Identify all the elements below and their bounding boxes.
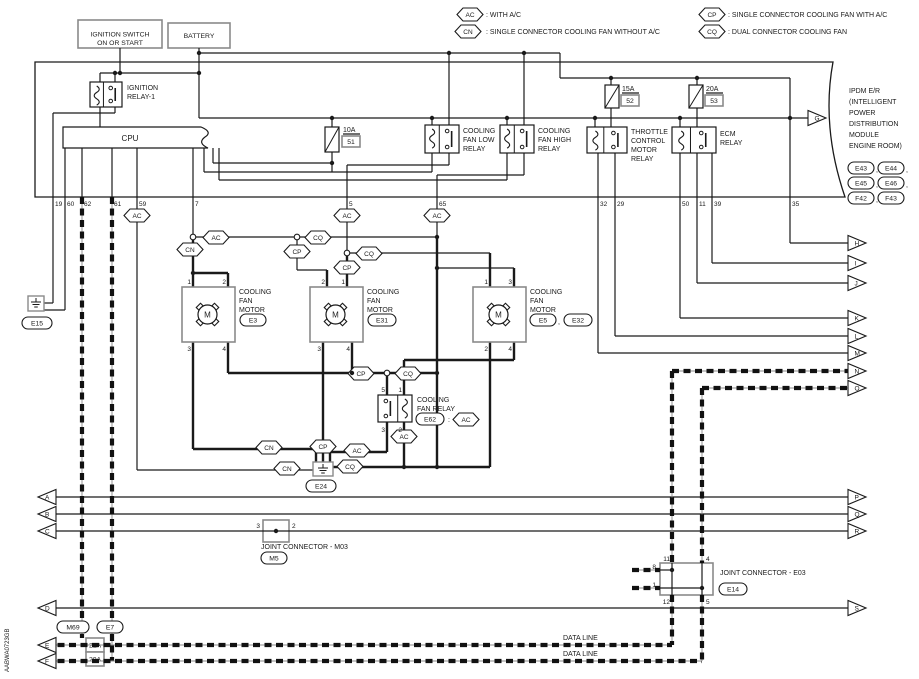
junction-dot [402, 465, 406, 469]
connector-oval-e45-label: E45 [855, 181, 867, 188]
connector-tag-ac-label: AC [465, 12, 474, 19]
junction-dot [670, 568, 674, 572]
text-label: 19 [55, 201, 63, 208]
text-label: 32 [600, 201, 608, 208]
connector-oval-e46-label: E46 [885, 181, 897, 188]
junction-dot [609, 76, 613, 80]
text-label: 1 [398, 387, 402, 394]
text-label: 1 [652, 582, 656, 589]
ignition-relay-symbol-contact [109, 86, 113, 90]
fuse-53-label-box-label: 53 [710, 98, 718, 105]
ecm-relay-symbol-contact [699, 145, 703, 149]
connector-oval-e15-label: E15 [31, 321, 43, 328]
text-label: 3 [381, 427, 385, 434]
throttle-control-motor-relay-symbol-contact [612, 131, 616, 135]
page-link-arrow-G-label: G [815, 115, 820, 122]
text-label: , [876, 182, 878, 189]
text-label: 8 [652, 564, 656, 571]
text-label: 59 [139, 201, 147, 208]
joint-connector-e03-box [660, 563, 713, 595]
text-label: ECMRELAY [720, 131, 743, 147]
junction-dot [118, 71, 122, 75]
page-link-arrow-I [848, 256, 866, 271]
text-label: 5 [349, 201, 353, 208]
text-label: : DUAL CONNECTOR COOLING FAN [728, 29, 847, 36]
page-link-arrow-S-label: S [855, 605, 860, 612]
connector-tag-ac-label: AC [399, 434, 408, 441]
junction-dot [788, 116, 792, 120]
cooling-fan-motor-2-symbol-letter: M [332, 311, 339, 320]
junction-dot [197, 51, 201, 55]
connector-tag-cn-label: CN [264, 445, 274, 452]
junction-dot [330, 116, 334, 120]
connector-tag-ac-label: AC [342, 213, 351, 220]
junction-dot [274, 529, 278, 533]
cooling-fan-high-relay-symbol-contact [520, 145, 524, 149]
text-label: , [558, 319, 560, 326]
text-label: 62 [84, 201, 92, 208]
junction-dot [522, 51, 526, 55]
text-label: : WITH A/C [486, 12, 521, 19]
connector-tag-cn-label: CN [282, 466, 292, 473]
connector-oval-e31-label: E31 [376, 318, 388, 325]
text-label: COOLINGFAN LOWRELAY [463, 128, 495, 153]
text-label: 65 [439, 201, 447, 208]
cooling-fan-low-relay-symbol-contact [445, 129, 449, 133]
connector-oval-e7-label: E7 [106, 625, 115, 632]
text-label: JOINT CONNECTOR - E03 [720, 570, 806, 577]
junction-dot [330, 161, 334, 165]
cooling-fan-low-relay-symbol-contact [445, 145, 449, 149]
text-label: 60 [67, 201, 75, 208]
connector-oval-m5-label: M5 [269, 556, 279, 563]
page-link-arrow-I-label: I [855, 260, 857, 267]
connector-tag-cq-label: CQ [403, 371, 413, 378]
text-label: 3 [317, 346, 321, 353]
text-label: 2 [398, 427, 402, 434]
text-label: : SINGLE CONNECTOR COOLING FAN WITH A/C [728, 12, 887, 19]
junction-dot [678, 116, 682, 120]
connector-oval-e62-label: E62 [424, 417, 436, 424]
throttle-control-motor-relay-symbol-contact [612, 145, 616, 149]
connector-oval-e3-label: E3 [249, 318, 258, 325]
page-link-arrow-B-label: B [45, 511, 49, 518]
connector-oval-f43-label: F43 [885, 196, 897, 203]
cooling-fan-motor-3-symbol-letter: M [495, 311, 502, 320]
connector-tag-cp-label: CP [318, 444, 327, 451]
text-label: 29 [617, 201, 625, 208]
junction-circle [344, 250, 350, 256]
text-label: CPU [122, 134, 139, 143]
connector-tag-cp-label: CP [356, 371, 365, 378]
text-label: 4 [508, 346, 512, 353]
text-label: 15A [622, 86, 635, 93]
page-link-arrow-M-label: M [855, 350, 860, 357]
page-link-arrow-O-label: O [855, 385, 860, 392]
ignition-relay-symbol-contact [109, 99, 113, 103]
page-link-arrow-N-label: N [855, 368, 860, 375]
text-label: 5 [706, 599, 710, 606]
text-label: 11 [699, 201, 706, 208]
connector-oval-f42-label: F42 [855, 196, 867, 203]
text-label: 4 [346, 346, 350, 353]
text-label: 3 [508, 279, 512, 286]
junction-circle [190, 234, 196, 240]
junction-dot [113, 71, 117, 75]
junction-dot [197, 71, 201, 75]
junction-dot [435, 235, 439, 239]
text-label: JOINT CONNECTOR - M03 [261, 544, 348, 551]
connector-oval-e44-label: E44 [885, 166, 897, 173]
text-label: IGNITIONRELAY-1 [127, 85, 158, 101]
junction-dot [191, 271, 195, 275]
text-label: 3 [256, 523, 260, 530]
page-link-arrow-L-label: L [855, 333, 859, 340]
connector-tag-cq-label: CQ [313, 235, 323, 242]
text-label: AABWA0723GB [5, 629, 11, 672]
connector-tag-cp-label: CP [707, 12, 716, 19]
fuse-51-label-box-label: 51 [347, 139, 355, 146]
text-label: 4 [222, 346, 226, 353]
junction-dot [447, 51, 451, 55]
cooling-fan-wiring-diagram: IGNITION SWITCHON OR STARTBATTERY5152532… [0, 0, 919, 679]
text-label: , [876, 167, 878, 174]
connector-tag-ac-label: AC [211, 235, 220, 242]
page-link-arrow-R-label: R [855, 528, 860, 535]
junction-dot [435, 465, 439, 469]
text-label: 2 [222, 279, 226, 286]
ecm-relay-symbol-contact [699, 131, 703, 135]
connector-tag-cn-label: CN [463, 29, 473, 36]
text-label: : [448, 417, 450, 424]
connector-tag-cn-label: CN [185, 247, 195, 254]
page-link-arrow-Q-label: Q [855, 511, 860, 518]
junction-dot [695, 76, 699, 80]
text-label: 3 [187, 346, 191, 353]
text-label: 20A [706, 86, 719, 93]
wiring-diagram-page: IGNITION SWITCHON OR STARTBATTERY5152532… [0, 0, 919, 679]
connector-oval-e5-label: E5 [539, 318, 548, 325]
page-link-arrow-F-label: F [45, 658, 49, 665]
text-label: 1 [341, 279, 345, 286]
text-label: 2 [321, 279, 325, 286]
text-label: DATA LINE [563, 635, 598, 642]
connector-oval-e24-label: E24 [315, 484, 327, 491]
page-link-arrow-A-label: A [45, 494, 50, 501]
page-link-arrow-E-label: E [45, 642, 50, 649]
text-label: 61 [114, 201, 122, 208]
connector-tag-cp-label: CP [292, 249, 301, 256]
connector-tag-ac-label: AC [352, 448, 361, 455]
text-label: IPDM E/R(INTELLIGENTPOWERDISTRIBUTIONMOD… [849, 88, 902, 150]
text-label: 7 [195, 201, 199, 208]
connector-oval-m69-label: M69 [66, 625, 79, 632]
text-label: 50 [682, 201, 690, 208]
junction-dot [350, 371, 354, 375]
text-label: 35 [792, 201, 800, 208]
connector-oval-e43-label: E43 [855, 166, 867, 173]
junction-dot [700, 586, 704, 590]
connector-tag-ac-label: AC [432, 213, 441, 220]
connector-oval-e14-label: E14 [727, 587, 739, 594]
battery-box-label: BATTERY [184, 33, 215, 40]
text-label: 11 [663, 556, 670, 563]
text-label: 5 [381, 387, 385, 394]
page-link-arrow-K-label: K [855, 315, 860, 322]
cooling-fan-motor-1-symbol-letter: M [204, 311, 211, 320]
text-label: DATA LINE [563, 651, 598, 658]
junction-dot [505, 116, 509, 120]
junction-circle [384, 370, 390, 376]
connector-tag-cp-label: CP [342, 265, 351, 272]
text-label: 4 [706, 556, 710, 563]
ignition-switch-box-label: IGNITION SWITCHON OR START [91, 32, 150, 48]
page-link-arrow-J-label: J [855, 280, 858, 287]
cooling-fan-high-relay-symbol-contact [520, 129, 524, 133]
cooling-fan-relay-symbol [378, 395, 412, 422]
connector-tag-cq-label: CQ [364, 251, 374, 258]
junction-circle [294, 234, 300, 240]
text-label: : SINGLE CONNECTOR COOLING FAN WITHOUT A… [486, 29, 660, 36]
connector-tag-cq-label: CQ [707, 29, 717, 36]
text-label: THROTTLECONTROLMOTORRELAY [631, 129, 668, 163]
page-link-arrow-C-label: C [45, 528, 50, 535]
junction-dot [435, 371, 439, 375]
text-label: 39 [714, 201, 722, 208]
page-link-arrow-H-label: H [855, 240, 860, 247]
text-label: 1 [484, 279, 488, 286]
text-label: 1 [187, 279, 191, 286]
fuse-52-label-box-label: 52 [626, 98, 634, 105]
text-label: COOLINGFANMOTOR [367, 289, 399, 314]
text-label: , [876, 197, 878, 204]
text-label: COOLINGFAN HIGHRELAY [538, 128, 571, 153]
connector-tag-ac-label: AC [132, 213, 141, 220]
junction-dot [435, 266, 439, 270]
cooling-fan-relay-symbol-contact [384, 414, 388, 418]
text-label: 2 [292, 523, 296, 530]
text-label: COOLINGFANMOTOR [239, 289, 271, 314]
text-label: COOLINGFANMOTOR [530, 289, 562, 314]
text-label: 2 [484, 346, 488, 353]
page-link-arrow-D-label: D [45, 605, 50, 612]
text-label: , [906, 182, 908, 189]
text-label: 12 [663, 599, 671, 606]
junction-dot [593, 116, 597, 120]
text-label: 10A [343, 127, 356, 134]
connector-tag-cq-label: CQ [345, 464, 355, 471]
connector-tag-ac-label: AC [461, 417, 470, 424]
cooling-fan-relay-symbol-contact [384, 399, 388, 403]
text-label: , [906, 167, 908, 174]
connector-oval-e32-label: E32 [572, 318, 584, 325]
page-link-arrow-P-label: P [855, 494, 859, 501]
junction-dot [430, 116, 434, 120]
